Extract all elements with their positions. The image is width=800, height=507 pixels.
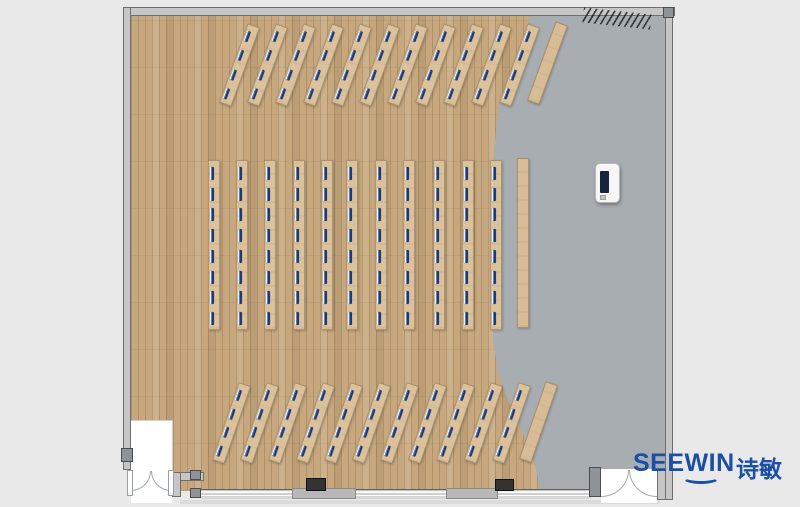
logo-smile-arc — [682, 471, 720, 484]
floor-plan-canvas: SEEWIN 诗敏 — [0, 0, 800, 507]
brand-name-cn: 诗敏 — [736, 450, 782, 484]
logo-layer: SEEWIN 诗敏 — [0, 0, 800, 507]
brand-logo: SEEWIN 诗敏 — [630, 449, 798, 494]
